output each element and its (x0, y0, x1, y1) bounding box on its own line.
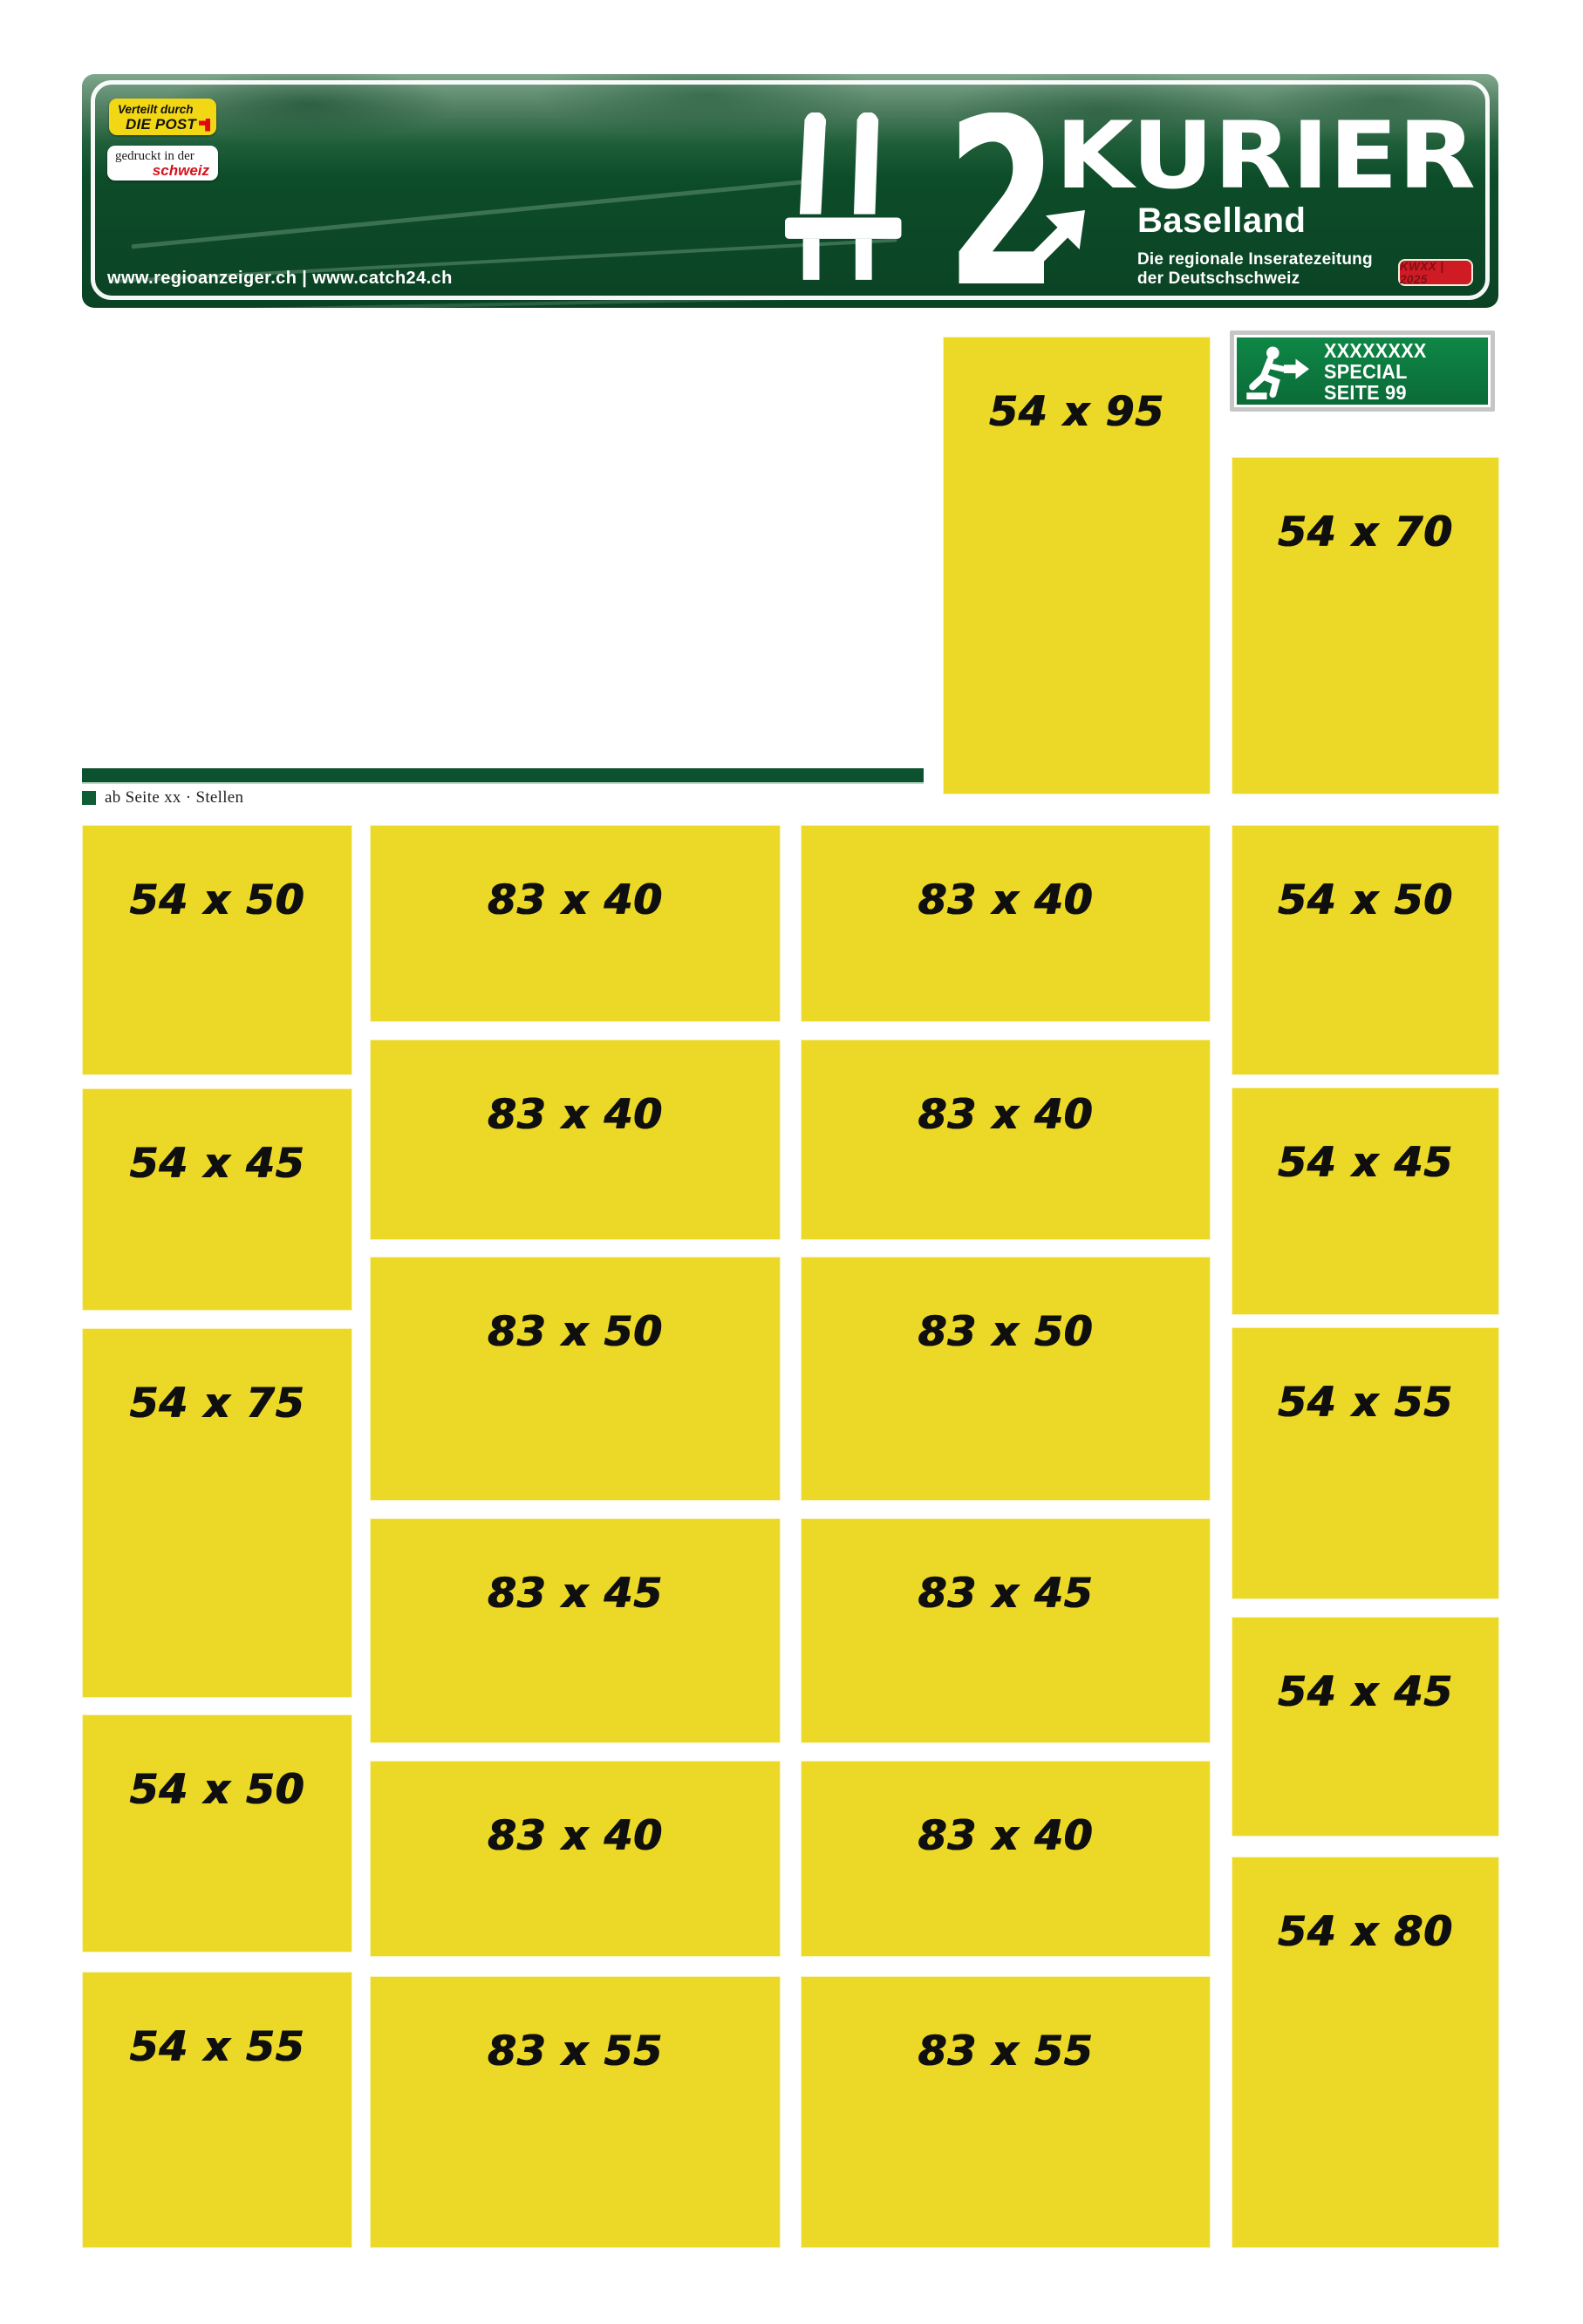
special-sign-line2: SPECIAL (1324, 361, 1427, 382)
swiss-post-logo-icon (199, 119, 210, 132)
ad-slot-83x50: 83 x 50 (371, 1257, 780, 1500)
ad-slot-size-label: 83 x 40 (371, 1812, 780, 1860)
ad-slot-size-label: 83 x 40 (371, 876, 780, 924)
ad-slot-83x40: 83 x 40 (802, 1762, 1210, 1956)
brand-wordmark: KURIER (1052, 118, 1484, 198)
ad-slot-54x80: 54 x 80 (1232, 1857, 1498, 2247)
masthead-banner: Verteilt durch DIE POST gedruckt in der … (82, 74, 1498, 308)
brand-text: KURIER (1055, 118, 1476, 198)
special-section-sign-panel: XXXXXXXX SPECIAL SEITE 99 (1234, 335, 1491, 407)
ad-slot-54x75: 54 x 75 (83, 1329, 351, 1697)
ad-slot-54x70: 54 x 70 (1232, 458, 1498, 794)
post-badge-line1: Verteilt durch (109, 99, 216, 116)
ad-slot-54x50: 54 x 50 (1232, 826, 1498, 1074)
ad-slot-size-label: 83 x 50 (802, 1308, 1210, 1356)
ad-slot-size-label: 54 x 95 (944, 388, 1210, 436)
ad-slot-size-label: 54 x 80 (1232, 1908, 1498, 1956)
ad-slot-size-label: 54 x 45 (1232, 1668, 1498, 1716)
ad-slot-54x50: 54 x 50 (83, 1715, 351, 1952)
ad-slot-83x50: 83 x 50 (802, 1257, 1210, 1500)
post-distribution-badge: Verteilt durch DIE POST (109, 99, 216, 135)
ad-slot-54x50: 54 x 50 (83, 826, 351, 1074)
ad-slot-size-label: 54 x 55 (1232, 1379, 1498, 1427)
tagline-line2: der Deutschschweiz (1137, 269, 1373, 289)
issue-week-badge: KWXX | 2025 (1398, 259, 1473, 286)
ad-slot-size-label: 54 x 50 (83, 1766, 351, 1814)
ad-slot-size-label: 83 x 45 (371, 1570, 780, 1618)
ad-slot-size-label: 83 x 40 (371, 1091, 780, 1139)
ad-slot-54x45: 54 x 45 (83, 1089, 351, 1310)
masthead-tagline: Die regionale Inseratezeitung der Deutsc… (1137, 250, 1373, 289)
northeast-arrow-icon (1006, 210, 1085, 289)
section-bullet-icon (82, 791, 96, 805)
section-marker-label: ab Seite xx · Stellen (105, 788, 243, 808)
ad-slot-83x45: 83 x 45 (371, 1519, 780, 1742)
special-sign-line1: XXXXXXXX (1324, 340, 1427, 361)
ad-slot-size-label: 54 x 55 (83, 2023, 351, 2071)
ad-slot-size-label: 54 x 45 (83, 1140, 351, 1188)
print-badge-line2: schweiz (107, 162, 218, 180)
region-title: Baselland (1137, 201, 1306, 241)
ad-slot-83x40: 83 x 40 (802, 826, 1210, 1021)
ad-slot-size-label: 54 x 50 (83, 876, 351, 924)
ad-slot-54x55: 54 x 55 (83, 1973, 351, 2247)
ad-slot-83x40: 83 x 40 (371, 826, 780, 1021)
newspaper-ad-layout-page: Verteilt durch DIE POST gedruckt in der … (0, 0, 1583, 2324)
ad-slot-size-label: 54 x 70 (1232, 508, 1498, 556)
ad-slot-83x45: 83 x 45 (802, 1519, 1210, 1742)
ad-slot-54x45: 54 x 45 (1232, 1088, 1498, 1314)
ad-slot-size-label: 83 x 40 (802, 1091, 1210, 1139)
ad-slot-83x55: 83 x 55 (371, 1977, 780, 2247)
ad-slot-size-label: 54 x 45 (1232, 1139, 1498, 1187)
ad-slot-size-label: 54 x 75 (83, 1380, 351, 1428)
post-badge-line2: DIE POST (126, 116, 196, 133)
tagline-line1: Die regionale Inseratezeitung (1137, 250, 1373, 269)
running-man-exit-icon (1245, 345, 1319, 399)
ad-slot-83x40: 83 x 40 (371, 1762, 780, 1956)
ad-slot-54x95: 54 x 95 (944, 337, 1210, 794)
printed-in-switzerland-badge: gedruckt in der schweiz (107, 146, 218, 181)
ad-slot-83x55: 83 x 55 (802, 1977, 1210, 2247)
ad-slot-size-label: 54 x 50 (1232, 876, 1498, 924)
ad-slot-83x40: 83 x 40 (371, 1040, 780, 1239)
special-section-text: XXXXXXXX SPECIAL SEITE 99 (1324, 340, 1427, 403)
bridge-bar-icon (785, 217, 901, 238)
ad-slot-size-label: 83 x 50 (371, 1308, 780, 1356)
ad-slot-54x55: 54 x 55 (1232, 1328, 1498, 1598)
ad-slot-size-label: 83 x 45 (802, 1570, 1210, 1618)
ad-slot-size-label: 83 x 40 (802, 1812, 1210, 1860)
special-sign-line3: SEITE 99 (1324, 382, 1427, 403)
special-section-sign: XXXXXXXX SPECIAL SEITE 99 (1230, 331, 1495, 412)
ad-slot-83x40: 83 x 40 (802, 1040, 1210, 1239)
masthead-urls: www.regioanzeiger.ch | www.catch24.ch (107, 269, 453, 289)
section-divider-bar (82, 768, 924, 784)
section-marker: ab Seite xx · Stellen (82, 788, 243, 808)
ad-slot-size-label: 83 x 55 (371, 2028, 780, 2075)
ad-slot-size-label: 83 x 55 (802, 2028, 1210, 2075)
ad-slot-size-label: 83 x 40 (802, 876, 1210, 924)
print-badge-line1: gedruckt in der (107, 146, 218, 164)
ad-slot-54x45: 54 x 45 (1232, 1618, 1498, 1836)
